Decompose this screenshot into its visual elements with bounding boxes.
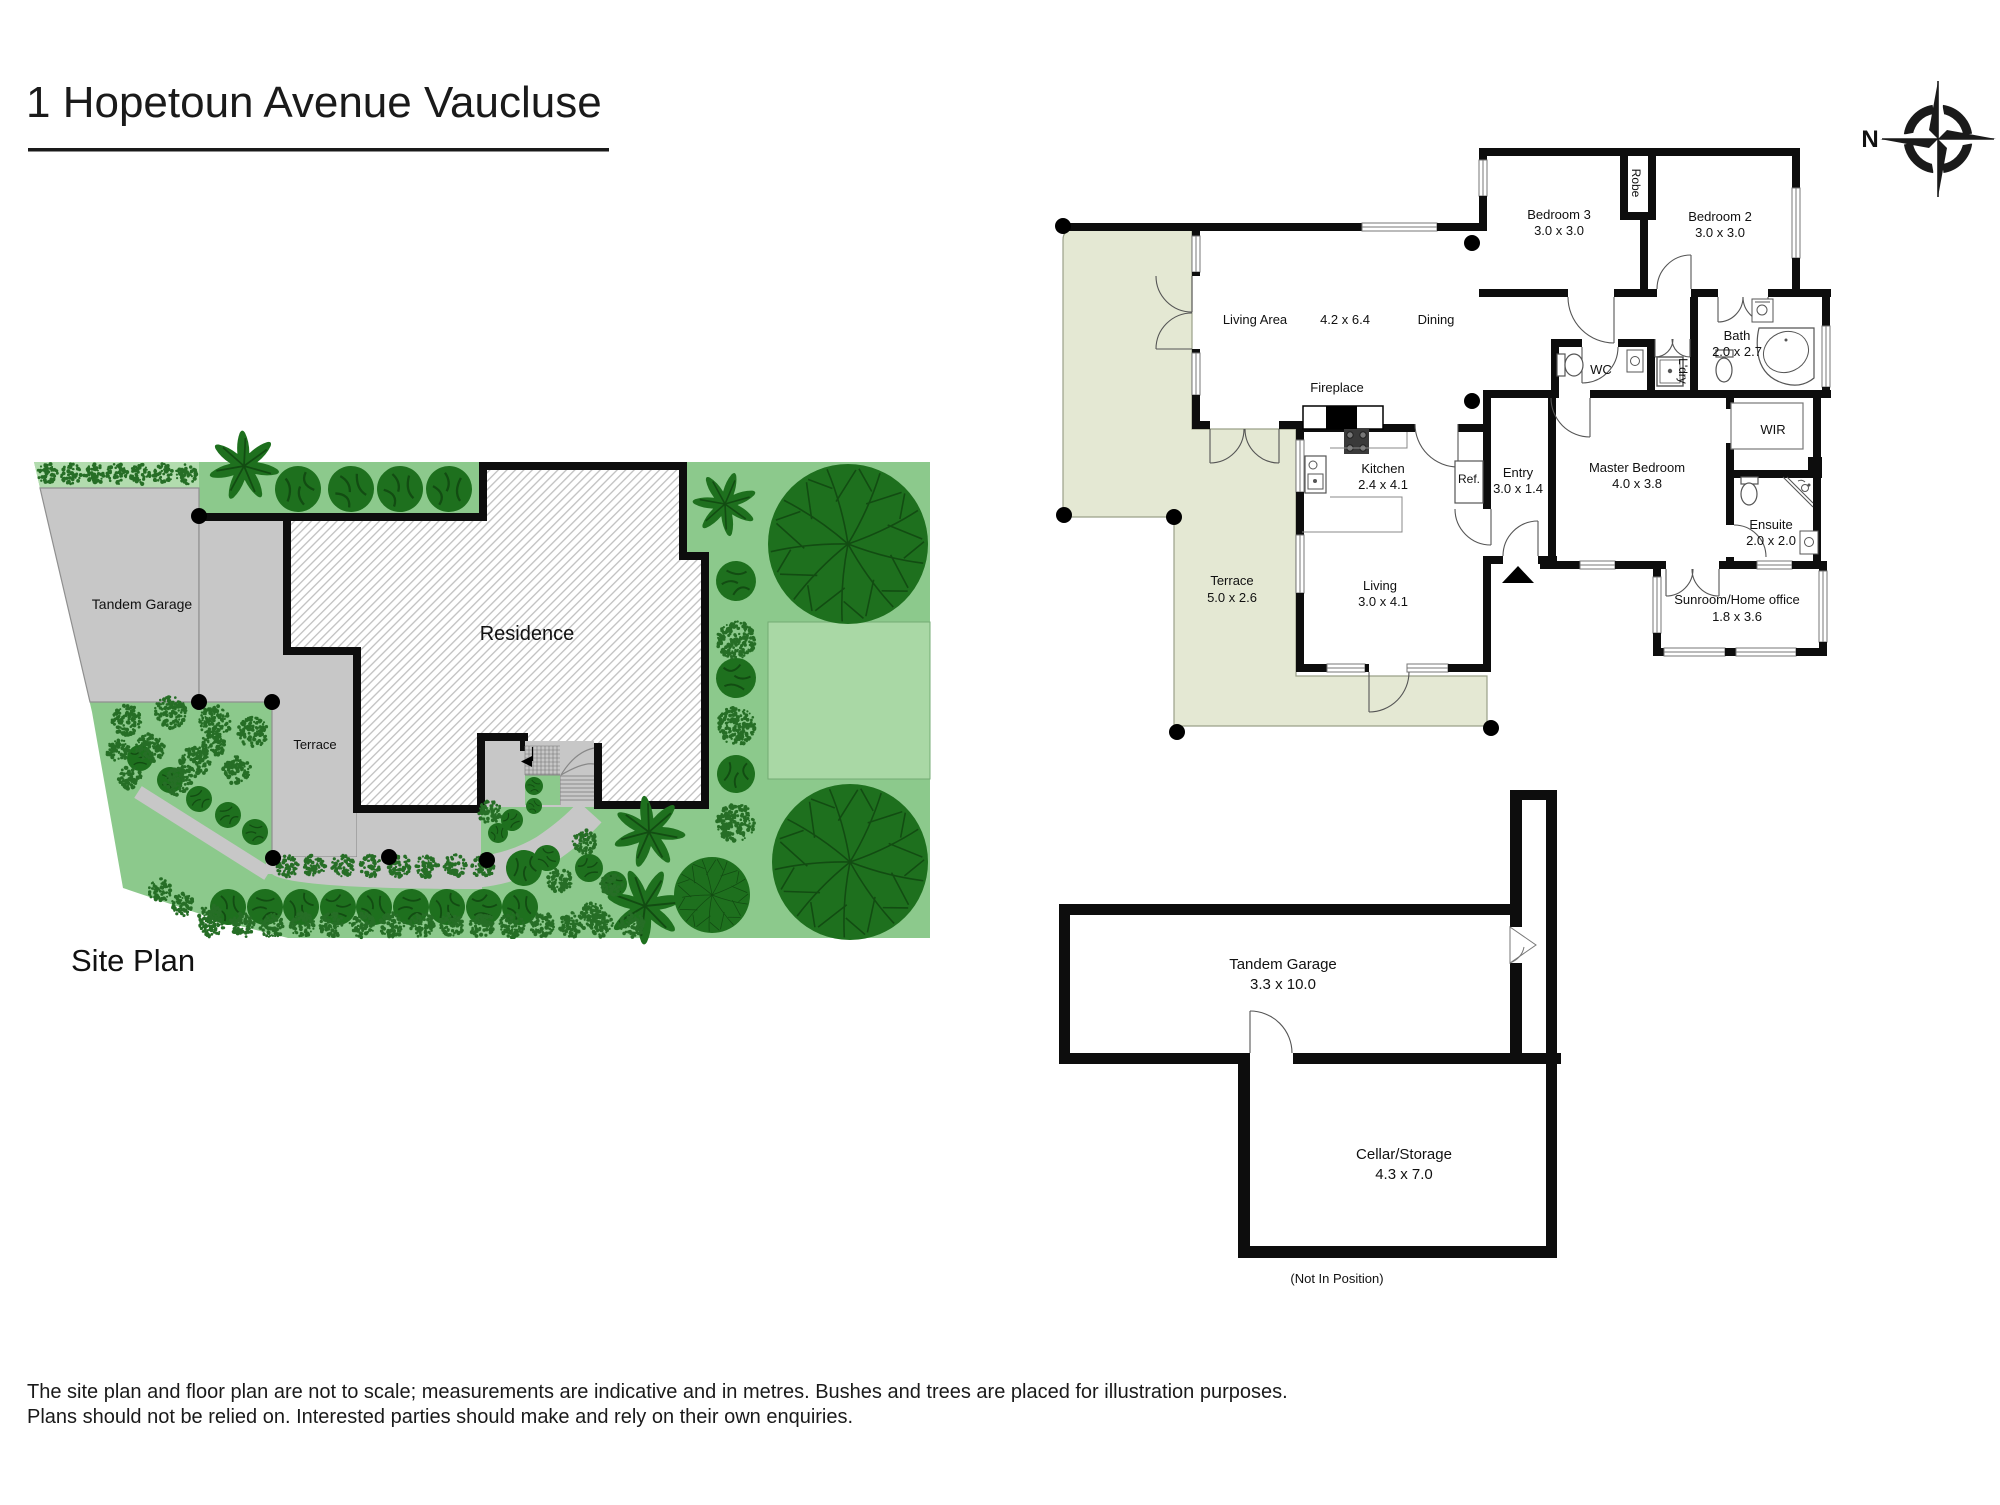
svg-text:3.3 x 10.0: 3.3 x 10.0 bbox=[1250, 976, 1316, 993]
svg-text:3.0 x 4.1: 3.0 x 4.1 bbox=[1358, 594, 1408, 609]
svg-text:Tandem Garage: Tandem Garage bbox=[1229, 956, 1337, 973]
svg-text:Sunroom/Home office: Sunroom/Home office bbox=[1674, 592, 1800, 607]
svg-text:2.0 x 2.0: 2.0 x 2.0 bbox=[1746, 533, 1796, 548]
svg-text:Living: Living bbox=[1363, 578, 1397, 593]
svg-text:3.0 x 1.4: 3.0 x 1.4 bbox=[1493, 481, 1543, 496]
svg-text:WIR: WIR bbox=[1760, 422, 1785, 437]
svg-text:Entry: Entry bbox=[1503, 465, 1534, 480]
svg-text:3.0 x 3.0: 3.0 x 3.0 bbox=[1695, 225, 1745, 240]
svg-text:Cellar/Storage: Cellar/Storage bbox=[1356, 1146, 1452, 1163]
svg-text:1.8 x 3.6: 1.8 x 3.6 bbox=[1712, 609, 1762, 624]
svg-text:Terrace: Terrace bbox=[293, 737, 336, 752]
svg-text:Tandem Garage: Tandem Garage bbox=[92, 596, 193, 612]
svg-text:3.0 x 3.0: 3.0 x 3.0 bbox=[1534, 223, 1584, 238]
svg-text:Master Bedroom: Master Bedroom bbox=[1589, 460, 1685, 475]
svg-text:L'dry: L'dry bbox=[1676, 358, 1690, 384]
svg-text:1 Hopetoun Avenue Vaucluse: 1 Hopetoun Avenue Vaucluse bbox=[26, 78, 602, 127]
svg-text:Robe: Robe bbox=[1629, 169, 1643, 198]
svg-text:Residence: Residence bbox=[480, 623, 575, 645]
svg-text:Ensuite: Ensuite bbox=[1749, 517, 1792, 532]
svg-text:Dining: Dining bbox=[1418, 312, 1455, 327]
svg-text:Fireplace: Fireplace bbox=[1310, 380, 1363, 395]
svg-text:Ref.: Ref. bbox=[1458, 472, 1480, 486]
svg-text:N: N bbox=[1861, 126, 1878, 153]
svg-text:4.0 x 3.8: 4.0 x 3.8 bbox=[1612, 476, 1662, 491]
svg-text:Kitchen: Kitchen bbox=[1361, 461, 1404, 476]
svg-text:4.3 x 7.0: 4.3 x 7.0 bbox=[1375, 1166, 1433, 1183]
svg-text:Terrace: Terrace bbox=[1210, 573, 1253, 588]
svg-text:5.0 x 2.6: 5.0 x 2.6 bbox=[1207, 590, 1257, 605]
svg-text:2.4 x 4.1: 2.4 x 4.1 bbox=[1358, 477, 1408, 492]
svg-text:Plans should not be relied on.: Plans should not be relied on. Intereste… bbox=[27, 1406, 853, 1428]
svg-text:The site plan and floor plan a: The site plan and floor plan are not to … bbox=[27, 1381, 1288, 1403]
svg-text:Bath: Bath bbox=[1724, 328, 1751, 343]
svg-text:Bedroom 2: Bedroom 2 bbox=[1688, 209, 1752, 224]
svg-text:Living Area: Living Area bbox=[1223, 312, 1288, 327]
svg-text:Bedroom 3: Bedroom 3 bbox=[1527, 207, 1591, 222]
svg-text:2.0 x 2.7: 2.0 x 2.7 bbox=[1712, 344, 1762, 359]
svg-text:(Not In Position): (Not In Position) bbox=[1290, 1271, 1383, 1286]
svg-text:4.2 x 6.4: 4.2 x 6.4 bbox=[1320, 312, 1370, 327]
svg-text:Site Plan: Site Plan bbox=[71, 943, 195, 978]
svg-text:WC: WC bbox=[1590, 362, 1612, 377]
